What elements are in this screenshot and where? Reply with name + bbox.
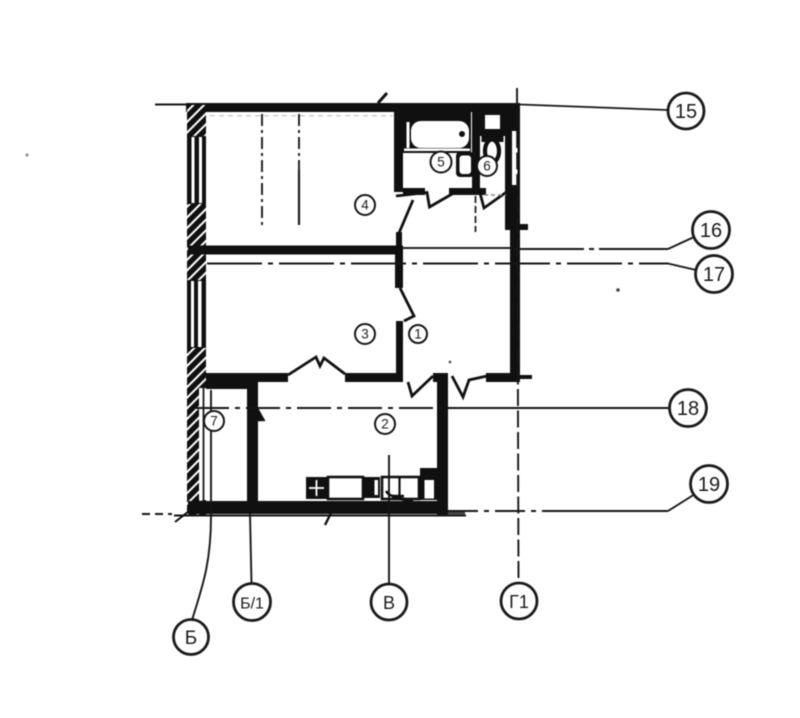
svg-text:5: 5	[437, 155, 445, 170]
svg-text:Б: Б	[185, 628, 197, 649]
svg-text:6: 6	[483, 159, 491, 174]
svg-text:4: 4	[361, 198, 369, 213]
svg-text:1: 1	[414, 327, 422, 342]
svg-text:7: 7	[210, 414, 218, 429]
svg-text:17: 17	[703, 264, 725, 286]
svg-text:3: 3	[361, 327, 369, 342]
svg-text:15: 15	[675, 101, 697, 123]
svg-text:2: 2	[381, 417, 389, 432]
svg-text:16: 16	[700, 220, 722, 242]
svg-text:19: 19	[698, 474, 720, 496]
svg-text:В: В	[383, 593, 395, 613]
svg-text:Г1: Г1	[509, 592, 529, 612]
svg-text:18: 18	[677, 398, 699, 420]
svg-text:Б/1: Б/1	[240, 596, 264, 613]
